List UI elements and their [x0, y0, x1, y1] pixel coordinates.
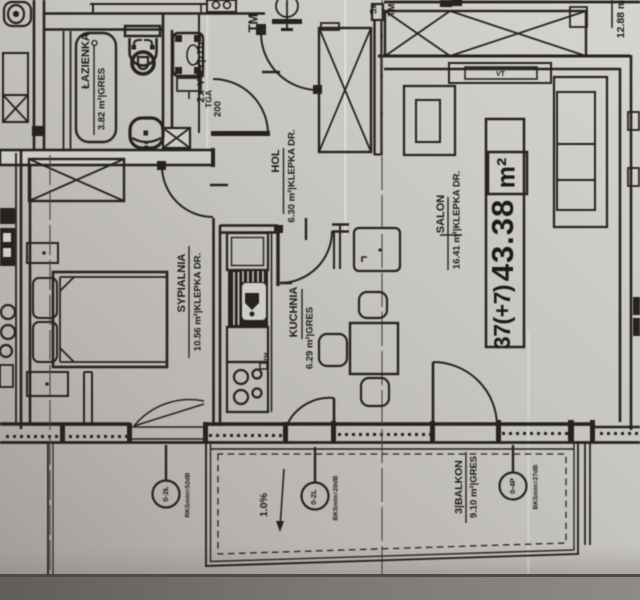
- svg-text:43.38: 43.38: [485, 199, 520, 282]
- svg-text:BKSmin=27dB: BKSmin=27dB: [533, 464, 540, 509]
- svg-text:5x: 5x: [368, 4, 378, 14]
- svg-text:3|BALKON: 3|BALKON: [453, 460, 465, 514]
- svg-text:0-2Ł: 0-2Ł: [161, 486, 170, 502]
- svg-text:16.41 m²|KLEPKA DR.: 16.41 m²|KLEPKA DR.: [452, 171, 463, 269]
- svg-text:KUCHNIA: KUCHNIA: [288, 287, 300, 338]
- svg-text:6.29 m²|GRES: 6.29 m²|GRES: [305, 307, 316, 369]
- svg-text:SALON: SALON: [435, 195, 447, 234]
- svg-text:BKSmin=20dB: BKSmin=20dB: [333, 475, 340, 520]
- svg-text:0-2L: 0-2L: [309, 489, 318, 505]
- svg-text:m²: m²: [493, 158, 521, 189]
- svg-text:0-4P: 0-4P: [508, 478, 517, 494]
- svg-text:VT: VT: [496, 71, 506, 78]
- svg-text:9.10 m²|GRES: 9.10 m²|GRES: [469, 456, 480, 518]
- svg-text:12.88 m: 12.88 m: [615, 0, 627, 38]
- svg-text:HOL: HOL: [270, 149, 282, 173]
- svg-text:37(+7): 37(+7): [489, 285, 515, 349]
- svg-text:ZM: ZM: [265, 353, 271, 362]
- svg-text:SYPIALNIA: SYPIALNIA: [176, 254, 188, 313]
- svg-text:ŁAZIENKA: ŁAZIENKA: [80, 33, 92, 89]
- svg-text:10.56 m²|KLEPKA DR.: 10.56 m²|KLEPKA DR.: [193, 253, 204, 351]
- svg-text:RKSmin=52dB: RKSmin=52dB: [185, 472, 192, 517]
- svg-text:3.82 m²|GRES: 3.82 m²|GRES: [97, 68, 108, 130]
- svg-text:1.0%: 1.0%: [258, 492, 270, 517]
- svg-text:200: 200: [213, 101, 224, 117]
- svg-text:6.30 m²|KLEPKA DR.: 6.30 m²|KLEPKA DR.: [287, 129, 298, 222]
